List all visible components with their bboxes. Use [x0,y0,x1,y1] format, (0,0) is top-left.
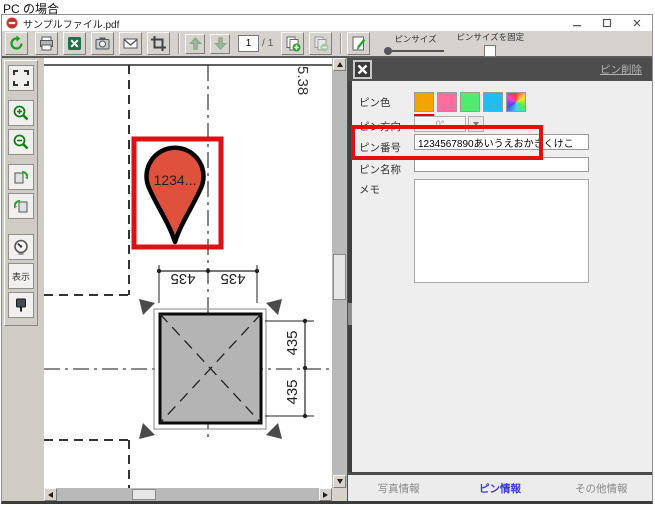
delete-pin-link[interactable]: ピン削除 [600,62,642,77]
panel-tabs: 写真情報 ピン情報 その他情報 [348,472,652,501]
rotate-right-icon [12,168,30,186]
panel-scroll-thumb[interactable] [348,303,352,325]
slider-track [392,50,444,52]
note-button[interactable] [347,32,370,55]
dim-dot [303,319,307,323]
titlebar: サンプルファイル.pdf [2,15,652,32]
pdf-canvas[interactable]: 435 435 435 435 5.38 1234... [44,58,332,488]
vertical-scrollbar[interactable] [332,58,347,488]
memo-textarea[interactable] [414,179,589,283]
pin-size-label: ピンサイズ [394,33,436,45]
tab-photo-info[interactable]: 写真情報 [348,481,449,496]
corner-marker [139,423,155,439]
maximize-icon [602,18,612,28]
horizontal-scroll-thumb[interactable] [132,489,156,500]
zoom-out-button[interactable] [8,129,34,155]
add-page-button[interactable] [281,32,304,55]
fullscreen-icon [12,69,30,87]
slider-thumb[interactable] [384,47,392,55]
scroll-up-button[interactable] [333,58,346,71]
toolbar-separator [340,33,342,54]
close-button[interactable] [622,16,652,31]
pin-number-label: ピン番号 [359,140,401,155]
rotate-left-button[interactable] [8,193,34,219]
dropdown-arrow-button[interactable] [468,116,484,132]
scroll-down-icon [337,479,343,484]
pin-direction-dropdown[interactable]: 0° [414,116,484,132]
scroll-left-button[interactable] [44,488,57,501]
rotate-left-icon [12,197,30,215]
down-arrow-icon [213,36,228,51]
pin-size-fix-group: ピンサイズを固定 [456,31,524,57]
drawing: 435 435 435 435 5.38 1234... [44,58,332,488]
tab-pin-info[interactable]: ピン情報 [449,481,550,496]
scroll-right-button[interactable] [319,488,332,501]
remove-page-icon [312,35,329,52]
elevation-label: 5.38 [294,66,311,95]
corner-marker [139,299,155,315]
side-toolbar: 表示 [2,58,44,501]
zoom-in-button[interactable] [8,100,34,126]
pin-direction-label: ピン方向 [359,119,401,134]
scroll-up-icon [337,62,343,67]
pin-name-input[interactable] [414,157,589,172]
toolbar-separator [178,33,180,54]
dim-dot [157,269,161,273]
color-swatch-green[interactable] [460,92,480,112]
minimize-button[interactable] [562,16,592,31]
scroll-right-icon [323,492,328,498]
pin-tool-button[interactable] [8,292,34,318]
corner-marker [266,423,282,439]
fit-screen-button[interactable] [8,65,34,91]
print-button[interactable] [35,32,58,55]
pin-size-slider[interactable] [384,47,444,55]
chevron-down-icon [473,122,479,126]
dim-label-right-top: 435 [284,330,301,355]
memo-label: メモ [359,182,380,197]
printer-icon [38,35,55,52]
side-toolbar-strip: 表示 [4,60,38,326]
dim-dot [206,269,210,273]
minimize-icon [572,18,582,28]
color-swatch-rainbow[interactable] [506,92,526,112]
dim-label-top-left: 435 [170,270,195,287]
app-window: サンプルファイル.pdf [1,14,653,504]
mail-icon [122,35,139,52]
window-title: サンプルファイル.pdf [23,16,119,31]
content-region: 表示 [2,58,652,501]
vertical-scroll-thumb[interactable] [333,254,346,300]
tab-other-info[interactable]: その他情報 [551,481,652,496]
toolbar: / 1 ピンサイズ [2,31,652,58]
panel-scrollbar[interactable] [348,81,352,475]
crop-icon [150,35,167,52]
scroll-down-button[interactable] [333,475,346,488]
scrollbar-corner [332,488,347,501]
close-icon [632,18,642,28]
pin-color-label: ピン色 [359,95,391,110]
dim-dot [303,366,307,370]
measure-button[interactable] [8,234,34,260]
panel-close-button[interactable] [353,60,372,79]
map-pin-marker[interactable] [147,148,204,242]
dim-label-top-right: 435 [220,270,245,287]
scroll-left-icon [48,492,53,498]
pin-tool-icon [12,296,30,314]
add-page-icon [284,35,301,52]
dim-dot [255,269,259,273]
mail-button[interactable] [119,32,142,55]
close-icon [357,64,368,75]
refresh-icon [8,35,25,52]
prev-page-button[interactable] [185,34,205,54]
pin-size-fix-checkbox[interactable] [484,45,496,57]
excel-export-button[interactable] [63,32,86,55]
note-edit-icon [350,35,367,52]
pin-color-swatches [414,92,529,112]
dim-dot [303,414,307,418]
color-swatch-orange[interactable] [414,92,434,112]
color-swatch-blue[interactable] [483,92,503,112]
pin-number-label: 1234... [154,172,197,188]
next-page-button[interactable] [210,34,230,54]
gauge-icon [12,238,30,256]
page-total: 1 [268,38,274,49]
window-controls [562,16,652,31]
page-number-input[interactable] [238,35,259,52]
pin-name-label: ピン名称 [359,162,401,177]
pin-size-slider-group: ピンサイズ [384,33,444,55]
panel-header: ピン削除 [348,58,652,81]
refresh-button[interactable] [5,32,28,55]
color-swatch-pink[interactable] [437,92,457,112]
zoom-in-icon [12,104,30,122]
pdf-app-icon [6,17,18,29]
zoom-out-icon [12,133,30,151]
horizontal-scrollbar[interactable] [44,488,332,501]
panel-body: ピン色 ピン方向 0° ピン番号 [348,81,652,475]
rotate-right-button[interactable] [8,164,34,190]
pin-info-panel: ピン削除 ピン色 ピン方向 0° [348,58,652,501]
page-separator: / [262,38,265,49]
pin-size-fix-label: ピンサイズを固定 [456,31,524,43]
photo-button[interactable] [91,32,114,55]
corner-marker [266,299,282,315]
excel-icon [66,35,83,52]
dim-label-right-bottom: 435 [284,379,301,404]
display-toggle-button[interactable]: 表示 [8,263,34,289]
crop-button[interactable] [147,32,170,55]
pin-number-input[interactable] [414,134,589,150]
camera-icon [94,35,111,52]
remove-page-button[interactable] [309,32,332,55]
maximize-button[interactable] [592,16,622,31]
up-arrow-icon [188,36,203,51]
pin-direction-value: 0° [414,116,466,132]
